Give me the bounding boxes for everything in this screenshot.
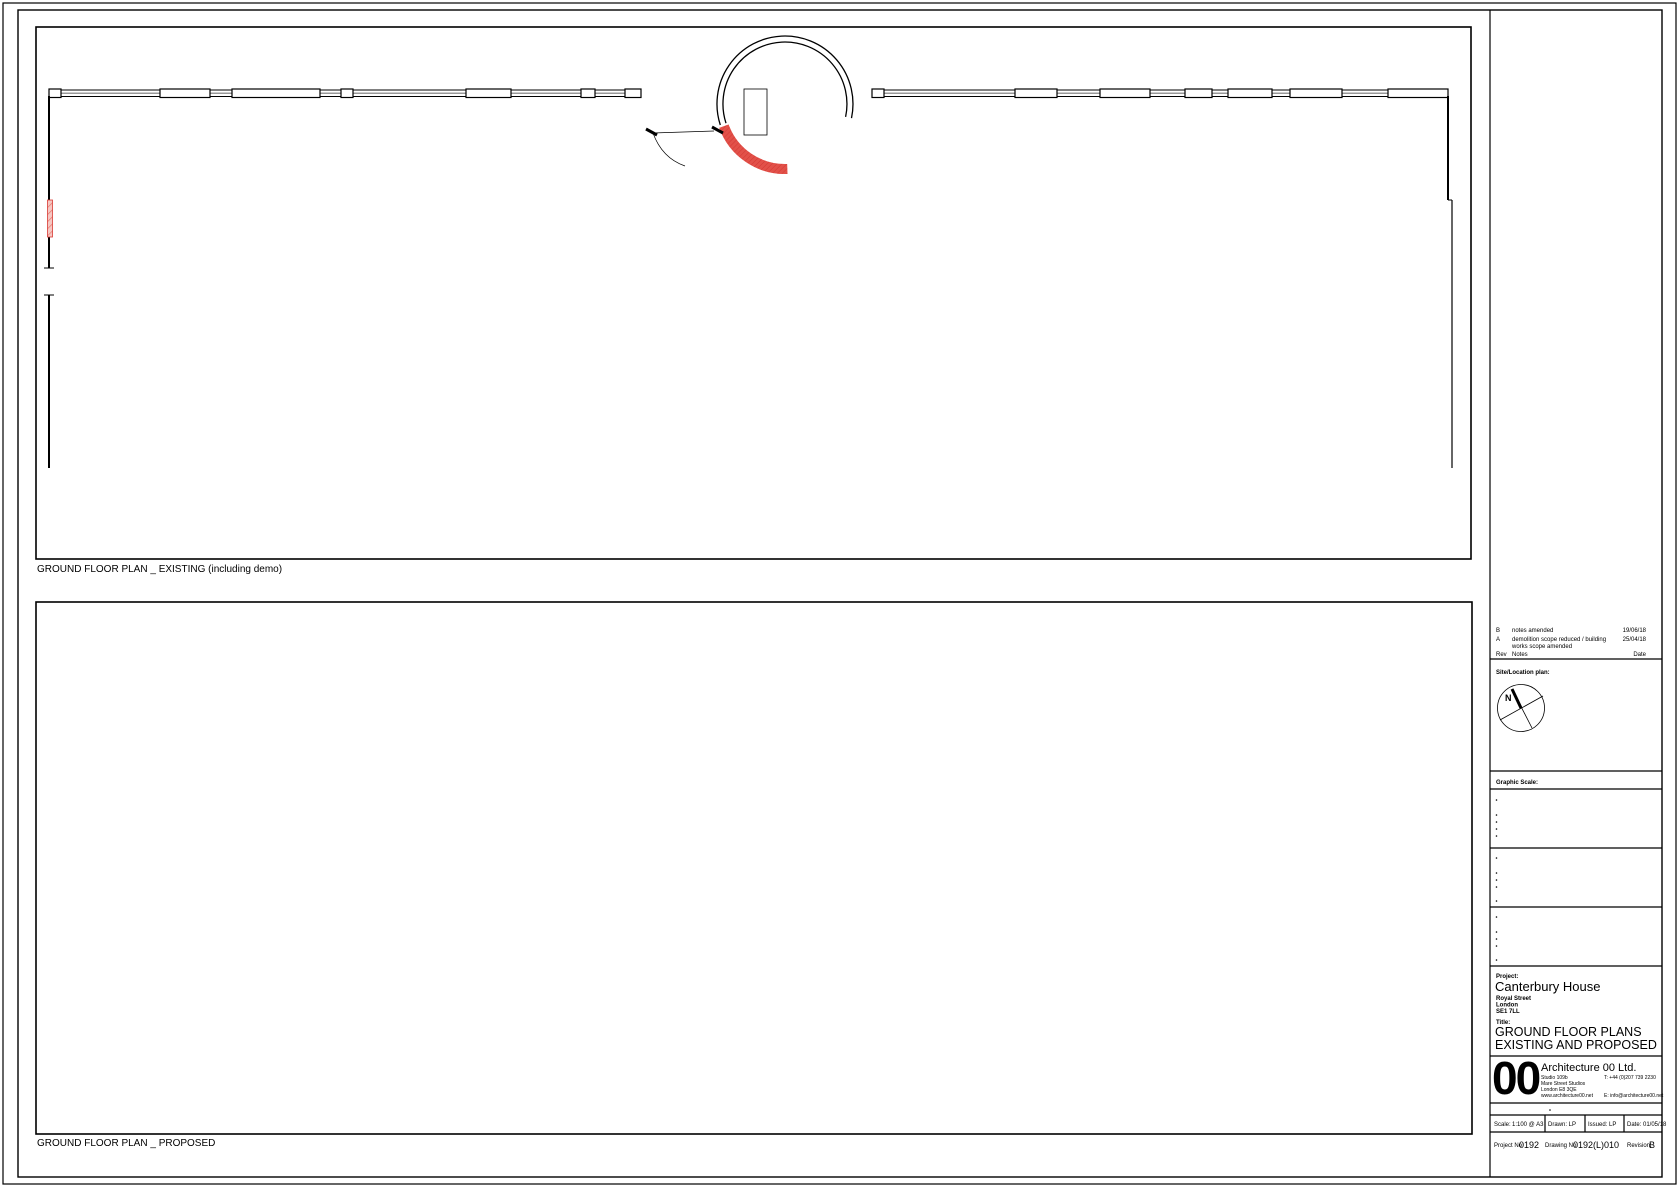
- svg-text:GROUND FLOOR PLAN _ EXISTING (: GROUND FLOOR PLAN _ EXISTING (including …: [37, 564, 282, 575]
- svg-text:B: B: [1649, 1140, 1655, 1150]
- svg-text:GROUND FLOOR PLANS: GROUND FLOOR PLANS: [1495, 1025, 1642, 1039]
- svg-text:0192: 0192: [1519, 1140, 1539, 1150]
- svg-text:Royal Street: Royal Street: [1496, 996, 1531, 1002]
- svg-text:works scope amended: works scope amended: [1511, 644, 1572, 650]
- svg-text:Issued: LP: Issued: LP: [1588, 1122, 1616, 1128]
- svg-text:Site/Location plan:: Site/Location plan:: [1496, 670, 1550, 676]
- svg-text:T: +44 (0)207 739 2230: T: +44 (0)207 739 2230: [1604, 1075, 1656, 1081]
- svg-text:19/06/18: 19/06/18: [1623, 628, 1647, 634]
- svg-text:Scale:: Scale:: [1494, 1122, 1511, 1128]
- svg-text:EXISTING AND PROPOSED: EXISTING AND PROPOSED: [1495, 1038, 1657, 1052]
- svg-text:Drawn: LP: Drawn: LP: [1548, 1122, 1576, 1128]
- svg-text:Rev: Rev: [1496, 652, 1507, 658]
- svg-text:A: A: [1496, 637, 1500, 643]
- svg-text:Date: 01/05/18: Date: 01/05/18: [1627, 1122, 1667, 1128]
- svg-text:www.architecture00.net: www.architecture00.net: [1541, 1093, 1594, 1099]
- svg-text:demolition scope reduced / bui: demolition scope reduced / building: [1512, 637, 1606, 643]
- svg-text:00: 00: [1492, 1052, 1540, 1104]
- svg-text:E: info@architecture00.net: E: info@architecture00.net: [1604, 1093, 1664, 1099]
- svg-text:Architecture 00 Ltd.: Architecture 00 Ltd.: [1541, 1062, 1636, 1074]
- svg-text:notes amended: notes amended: [1512, 628, 1553, 634]
- svg-text:Notes: Notes: [1512, 652, 1528, 658]
- svg-text:Graphic Scale:: Graphic Scale:: [1496, 780, 1538, 786]
- svg-text:Canterbury House: Canterbury House: [1495, 979, 1601, 994]
- svg-text:London: London: [1496, 1003, 1518, 1009]
- svg-text:0192(L)010: 0192(L)010: [1573, 1140, 1619, 1150]
- svg-text:B: B: [1496, 628, 1500, 634]
- svg-text:Date: Date: [1633, 652, 1646, 658]
- svg-text:GROUND FLOOR PLAN _ PROPOSED: GROUND FLOOR PLAN _ PROPOSED: [37, 1138, 215, 1149]
- svg-text:SE1 7LL: SE1 7LL: [1496, 1009, 1520, 1015]
- svg-text:1:100 @ A3: 1:100 @ A3: [1512, 1122, 1544, 1128]
- svg-text:N: N: [1505, 693, 1512, 703]
- svg-text:25/04/18: 25/04/18: [1623, 637, 1647, 643]
